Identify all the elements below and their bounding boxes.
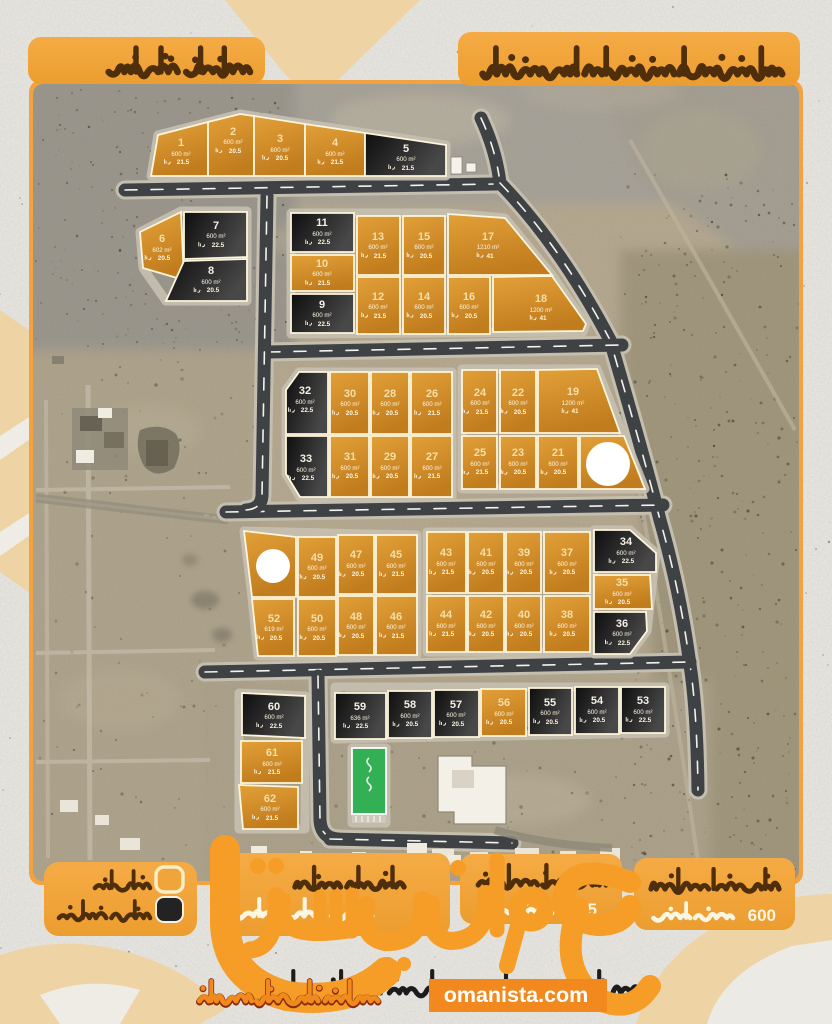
svg-text:21: 21	[552, 447, 564, 459]
svg-text:20.5: 20.5	[554, 469, 567, 476]
svg-text:600 m²: 600 m²	[386, 624, 405, 631]
svg-text:600 m²: 600 m²	[470, 400, 489, 407]
svg-text:600 m²: 600 m²	[325, 151, 344, 158]
svg-text:1200 m²: 1200 m²	[562, 400, 585, 407]
svg-text:22: 22	[512, 387, 524, 399]
svg-text:600 m²: 600 m²	[346, 563, 365, 570]
svg-text:600 m²: 600 m²	[616, 550, 635, 557]
svg-text:20.5: 20.5	[158, 255, 171, 262]
svg-text:600 m²: 600 m²	[260, 806, 279, 813]
svg-text:21.5: 21.5	[331, 159, 344, 166]
svg-text:22.5: 22.5	[356, 723, 369, 730]
svg-text:600 m²: 600 m²	[414, 304, 433, 311]
svg-text:2: 2	[230, 126, 236, 138]
svg-text:600 m²: 600 m²	[340, 465, 359, 472]
svg-text:52: 52	[268, 613, 280, 625]
svg-text:600 m²: 600 m²	[446, 712, 465, 719]
svg-text:21.5: 21.5	[268, 769, 281, 776]
svg-text:33: 33	[300, 453, 312, 465]
svg-text:57: 57	[450, 699, 462, 711]
svg-text:21.5: 21.5	[442, 631, 455, 638]
svg-text:600 m²: 600 m²	[262, 761, 281, 768]
svg-text:20.5: 20.5	[563, 569, 576, 576]
svg-text:47: 47	[350, 549, 362, 561]
svg-text:5: 5	[403, 143, 409, 155]
svg-text:22.5: 22.5	[212, 242, 225, 249]
svg-text:16: 16	[463, 291, 475, 303]
svg-text:32: 32	[299, 385, 311, 397]
svg-text:600 m²: 600 m²	[206, 233, 225, 240]
svg-text:20.5: 20.5	[546, 719, 559, 726]
svg-text:41: 41	[571, 408, 579, 415]
svg-text:6: 6	[159, 233, 165, 245]
svg-text:600 m²: 600 m²	[587, 709, 606, 716]
svg-text:21.5: 21.5	[476, 469, 489, 476]
svg-text:20.5: 20.5	[346, 410, 359, 417]
svg-text:62: 62	[264, 793, 276, 805]
svg-text:14: 14	[418, 291, 431, 303]
svg-text:20.5: 20.5	[520, 569, 533, 576]
svg-text:59: 59	[354, 701, 366, 713]
svg-text:45: 45	[390, 549, 402, 561]
svg-text:20.5: 20.5	[482, 631, 495, 638]
svg-text:600 m²: 600 m²	[223, 139, 242, 146]
svg-text:20.5: 20.5	[452, 721, 465, 728]
svg-text:18: 18	[535, 293, 547, 305]
svg-text:54: 54	[591, 695, 604, 707]
svg-text:1210 m²: 1210 m²	[477, 244, 500, 251]
svg-text:58: 58	[404, 699, 416, 711]
svg-text:20.5: 20.5	[207, 287, 220, 294]
svg-text:39: 39	[518, 547, 530, 559]
svg-text:21.5: 21.5	[428, 473, 441, 480]
svg-text:55: 55	[544, 697, 556, 709]
svg-text:600 m²: 600 m²	[264, 714, 283, 721]
svg-text:600 m²: 600 m²	[400, 713, 419, 720]
svg-text:636 m²: 636 m²	[350, 715, 369, 722]
svg-text:26: 26	[426, 388, 438, 400]
svg-text:28: 28	[384, 388, 396, 400]
svg-text:21.5: 21.5	[374, 253, 387, 260]
svg-text:600 m²: 600 m²	[422, 401, 441, 408]
svg-text:22.5: 22.5	[622, 558, 635, 565]
svg-text:34: 34	[620, 536, 633, 548]
svg-text:20.5: 20.5	[270, 635, 283, 642]
svg-text:37: 37	[561, 547, 573, 559]
svg-text:20.5: 20.5	[313, 635, 326, 642]
svg-text:20.5: 20.5	[406, 721, 419, 728]
svg-text:9: 9	[319, 299, 325, 311]
svg-text:600 m²: 600 m²	[368, 304, 387, 311]
svg-text:600 m²: 600 m²	[476, 623, 495, 630]
svg-text:44: 44	[440, 609, 453, 621]
svg-text:7: 7	[213, 220, 219, 232]
svg-text:21.5: 21.5	[318, 280, 331, 287]
svg-text:20.5: 20.5	[514, 409, 527, 416]
svg-text:619 m²: 619 m²	[264, 626, 283, 633]
svg-text:600 m²: 600 m²	[422, 465, 441, 472]
svg-text:22.5: 22.5	[639, 717, 652, 724]
svg-text:600 m²: 600 m²	[270, 147, 289, 154]
svg-text:31: 31	[344, 451, 356, 463]
svg-text:61: 61	[266, 747, 278, 759]
svg-text:22.5: 22.5	[270, 723, 283, 730]
svg-text:600 m²: 600 m²	[459, 304, 478, 311]
svg-text:35: 35	[616, 577, 628, 589]
svg-text:600 m²: 600 m²	[312, 271, 331, 278]
svg-text:20.5: 20.5	[346, 473, 359, 480]
svg-text:600 m²: 600 m²	[340, 401, 359, 408]
svg-text:42: 42	[480, 609, 492, 621]
svg-text:600 m²: 600 m²	[307, 626, 326, 633]
svg-text:20.5: 20.5	[520, 631, 533, 638]
svg-text:15: 15	[418, 231, 430, 243]
svg-text:20.5: 20.5	[482, 569, 495, 576]
svg-text:20.5: 20.5	[229, 148, 242, 155]
svg-text:20.5: 20.5	[593, 717, 606, 724]
svg-text:21.5: 21.5	[266, 815, 279, 822]
svg-text:21.5: 21.5	[392, 633, 405, 640]
svg-text:20.5: 20.5	[313, 574, 326, 581]
svg-text:41: 41	[539, 315, 547, 322]
svg-text:11: 11	[316, 217, 328, 229]
svg-text:20.5: 20.5	[276, 155, 289, 162]
svg-text:29: 29	[384, 451, 396, 463]
svg-text:600 m²: 600 m²	[171, 151, 190, 158]
svg-text:50: 50	[311, 613, 323, 625]
svg-text:omanista.com: omanista.com	[444, 983, 589, 1007]
svg-text:24: 24	[474, 387, 487, 399]
svg-text:22.5: 22.5	[301, 407, 314, 414]
svg-text:53: 53	[637, 695, 649, 707]
svg-text:8: 8	[208, 265, 214, 277]
svg-text:12: 12	[372, 291, 384, 303]
svg-text:41: 41	[486, 253, 494, 260]
svg-text:49: 49	[311, 552, 323, 564]
svg-text:40: 40	[518, 609, 530, 621]
svg-text:43: 43	[440, 547, 452, 559]
svg-text:600 m²: 600 m²	[633, 709, 652, 716]
svg-text:20.5: 20.5	[500, 719, 513, 726]
svg-text:21.5: 21.5	[392, 571, 405, 578]
svg-text:600 m²: 600 m²	[380, 465, 399, 472]
svg-text:600 m²: 600 m²	[548, 461, 567, 468]
svg-text:21.5: 21.5	[402, 165, 415, 172]
svg-text:600 m²: 600 m²	[396, 156, 415, 163]
svg-text:38: 38	[561, 609, 573, 621]
svg-text:46: 46	[390, 611, 402, 623]
svg-text:600 m²: 600 m²	[312, 312, 331, 319]
svg-text:20.5: 20.5	[514, 469, 527, 476]
svg-text:600 m²: 600 m²	[201, 279, 220, 286]
svg-text:20.5: 20.5	[465, 313, 478, 320]
svg-text:21.5: 21.5	[442, 569, 455, 576]
svg-text:600 m²: 600 m²	[557, 623, 576, 630]
svg-text:600 m²: 600 m²	[508, 461, 527, 468]
svg-text:22.5: 22.5	[318, 321, 331, 328]
svg-text:22.5: 22.5	[618, 640, 631, 647]
svg-text:20.5: 20.5	[420, 253, 433, 260]
svg-text:600 m²: 600 m²	[470, 461, 489, 468]
svg-text:10: 10	[316, 258, 328, 270]
svg-text:600 m²: 600 m²	[514, 561, 533, 568]
svg-text:25: 25	[474, 447, 486, 459]
svg-text:600 m²: 600 m²	[296, 467, 315, 474]
svg-text:20.5: 20.5	[352, 571, 365, 578]
svg-text:21.5: 21.5	[374, 313, 387, 320]
svg-text:600 m²: 600 m²	[508, 400, 527, 407]
svg-text:600 m²: 600 m²	[612, 631, 631, 638]
svg-text:600 m²: 600 m²	[307, 565, 326, 572]
svg-text:600 m²: 600 m²	[368, 244, 387, 251]
svg-text:21.5: 21.5	[476, 409, 489, 416]
svg-text:20.5: 20.5	[420, 313, 433, 320]
svg-text:600 m²: 600 m²	[436, 623, 455, 630]
svg-text:27: 27	[426, 451, 438, 463]
svg-text:600 m²: 600 m²	[380, 401, 399, 408]
svg-text:600 m²: 600 m²	[386, 563, 405, 570]
svg-text:22.5: 22.5	[302, 475, 315, 482]
svg-text:21.5: 21.5	[177, 159, 190, 166]
svg-text:48: 48	[350, 611, 362, 623]
svg-text:600 m²: 600 m²	[346, 624, 365, 631]
svg-text:600 m²: 600 m²	[540, 710, 559, 717]
svg-text:19: 19	[567, 386, 579, 398]
svg-text:600 m²: 600 m²	[476, 561, 495, 568]
svg-text:600 m²: 600 m²	[514, 623, 533, 630]
svg-text:600 m²: 600 m²	[414, 244, 433, 251]
svg-text:600 m²: 600 m²	[436, 561, 455, 568]
svg-text:41: 41	[480, 547, 492, 559]
svg-text:20.5: 20.5	[563, 631, 576, 638]
svg-text:1200 m²: 1200 m²	[530, 307, 553, 314]
svg-text:20.5: 20.5	[352, 633, 365, 640]
svg-text:600 m²: 600 m²	[312, 231, 331, 238]
svg-text:36: 36	[616, 618, 628, 630]
svg-text:1: 1	[178, 137, 184, 149]
svg-text:56: 56	[498, 697, 510, 709]
svg-text:600: 600	[748, 906, 776, 925]
svg-text:602 m²: 602 m²	[152, 247, 171, 254]
svg-text:23: 23	[512, 447, 524, 459]
svg-text:21.5: 21.5	[428, 410, 441, 417]
svg-text:22.5: 22.5	[318, 239, 331, 246]
svg-text:20.5: 20.5	[386, 410, 399, 417]
svg-text:600 m²: 600 m²	[557, 561, 576, 568]
svg-text:3: 3	[277, 133, 283, 145]
svg-text:600 m²: 600 m²	[295, 399, 314, 406]
svg-text:13: 13	[372, 231, 384, 243]
svg-text:600 m²: 600 m²	[494, 711, 513, 718]
svg-text:17: 17	[482, 231, 494, 243]
svg-text:4: 4	[332, 137, 339, 149]
svg-text:60: 60	[268, 701, 280, 713]
svg-text:20.5: 20.5	[618, 599, 631, 606]
svg-text:30: 30	[344, 388, 356, 400]
svg-text:600 m²: 600 m²	[612, 591, 631, 598]
svg-text:20.5: 20.5	[386, 473, 399, 480]
